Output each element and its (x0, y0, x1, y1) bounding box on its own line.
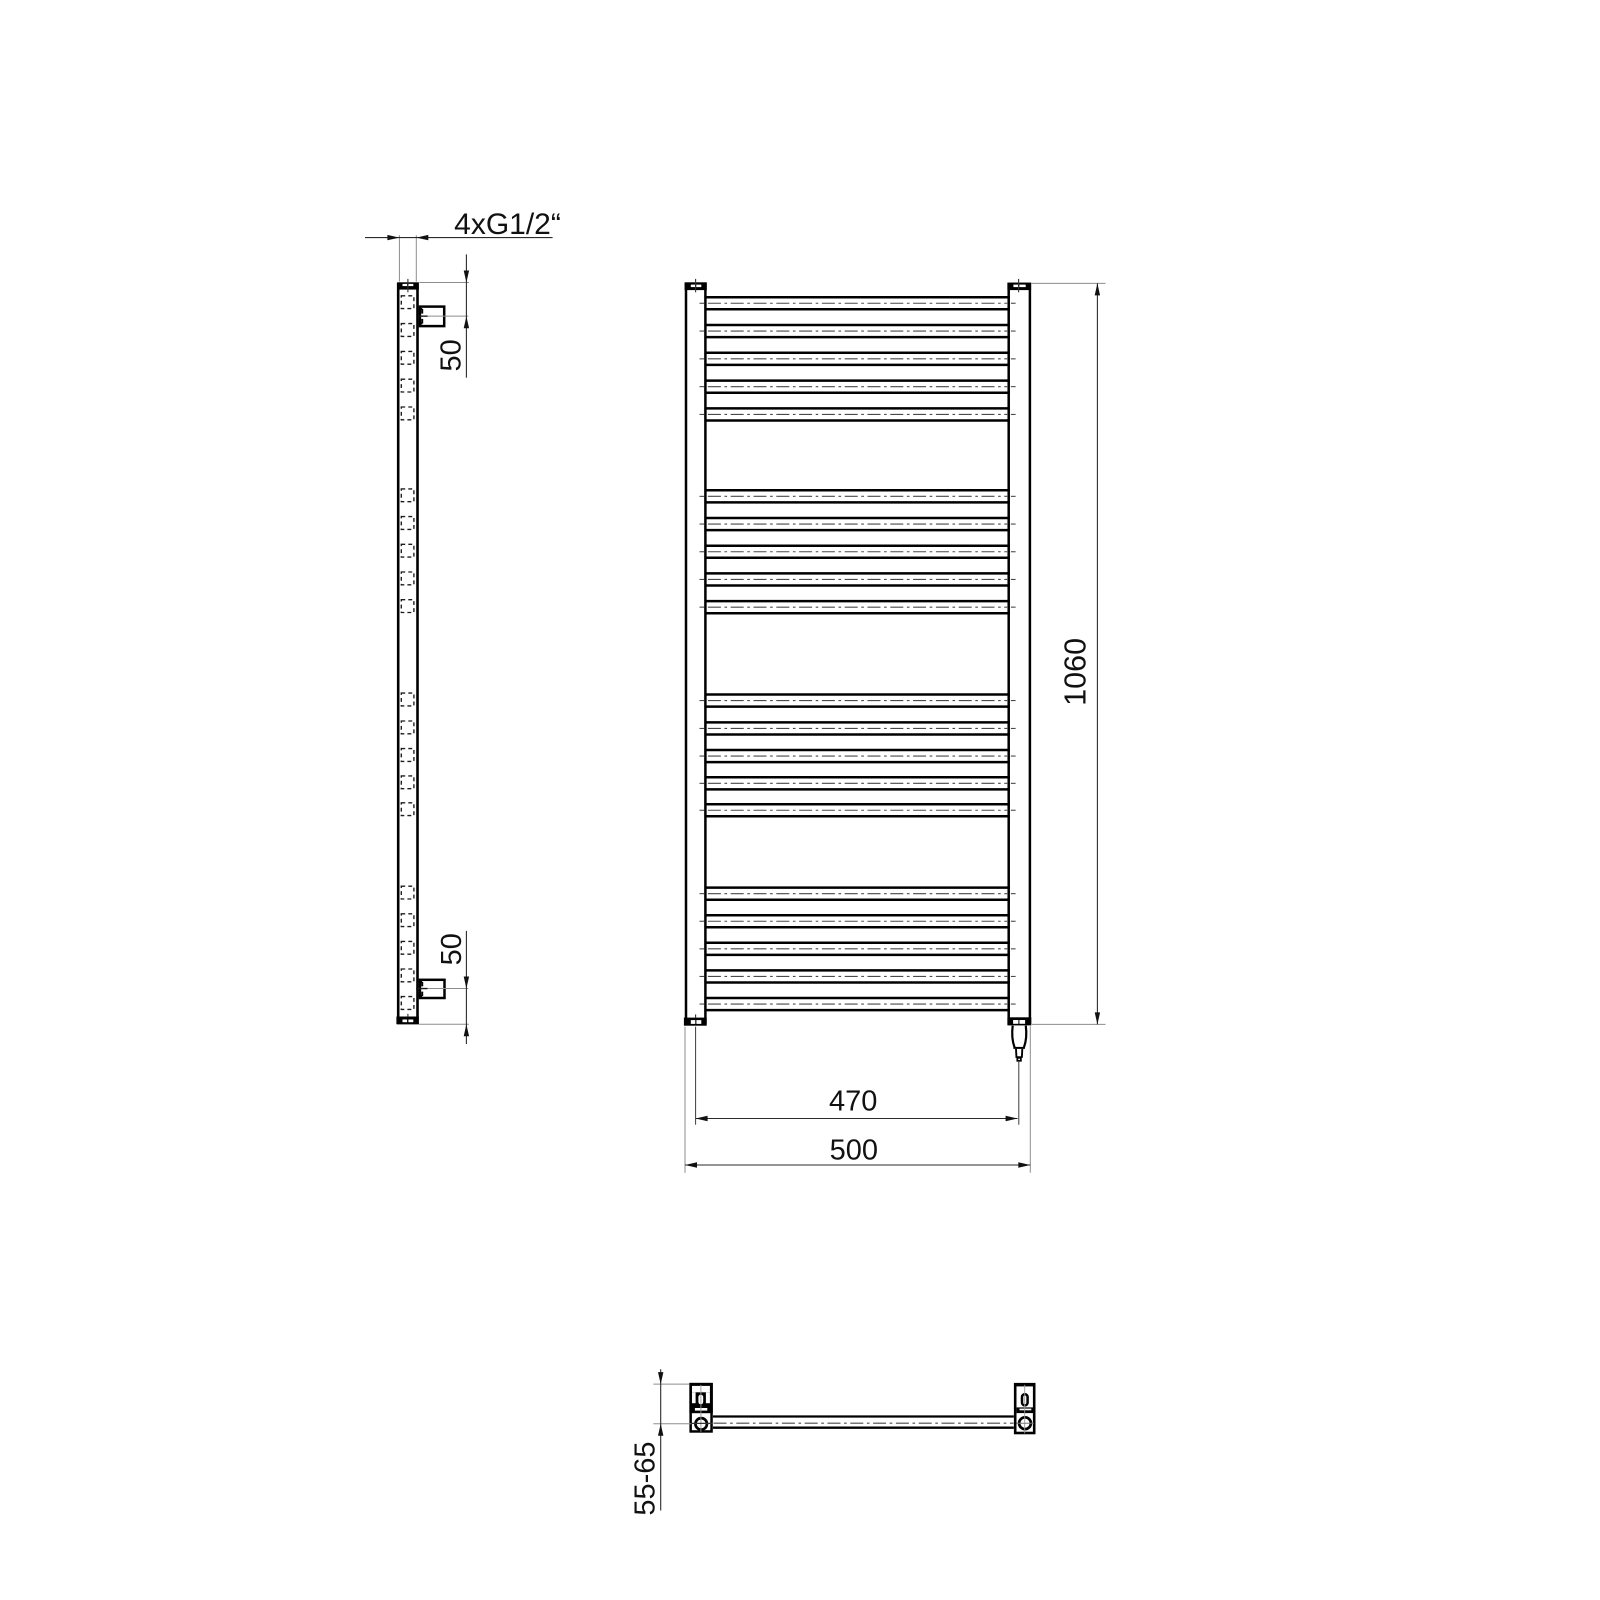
svg-text:4xG1/2“: 4xG1/2“ (454, 208, 561, 241)
svg-text:500: 500 (830, 1135, 878, 1167)
svg-text:470: 470 (829, 1085, 877, 1117)
svg-text:50: 50 (436, 933, 468, 965)
svg-text:1060: 1060 (1058, 638, 1092, 706)
svg-text:55-65: 55-65 (630, 1442, 662, 1516)
svg-text:50: 50 (436, 339, 468, 371)
